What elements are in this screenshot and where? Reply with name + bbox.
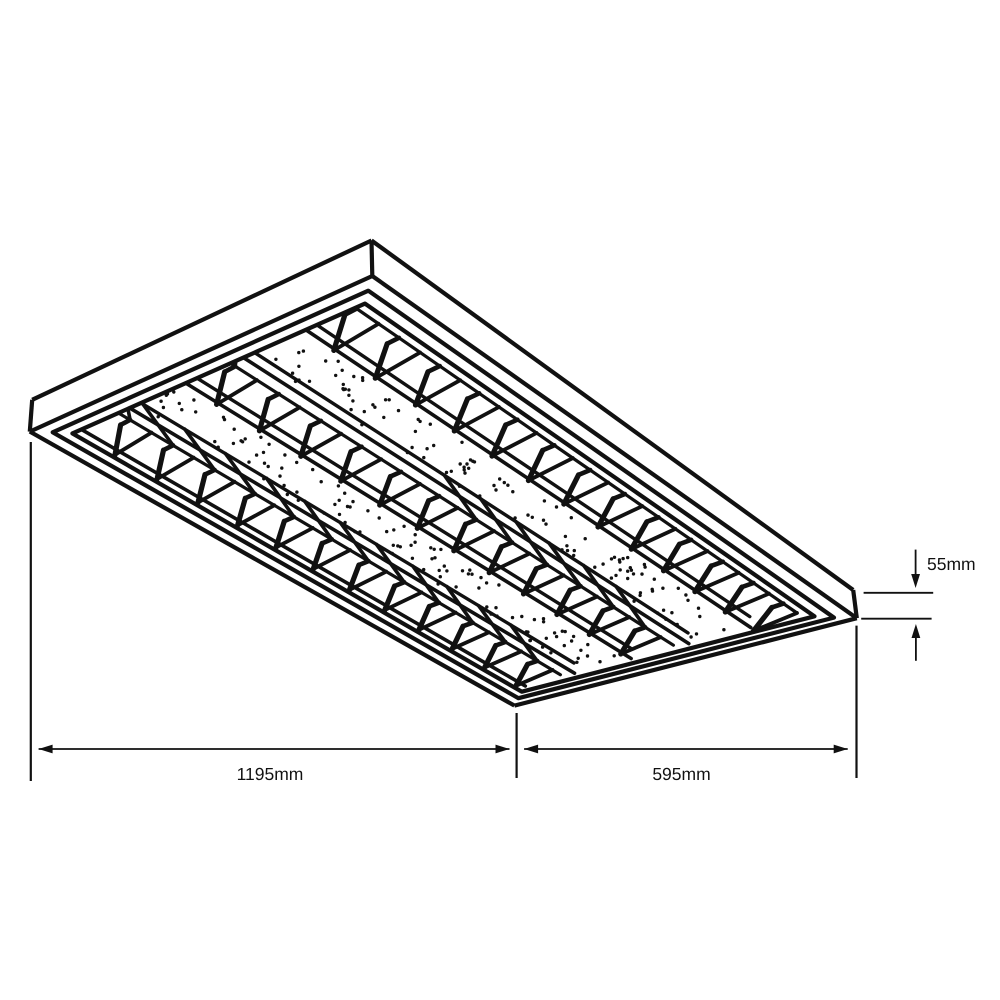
svg-text:1195mm: 1195mm bbox=[237, 764, 304, 784]
svg-text:55mm: 55mm bbox=[927, 554, 976, 574]
svg-text:595mm: 595mm bbox=[652, 764, 710, 784]
